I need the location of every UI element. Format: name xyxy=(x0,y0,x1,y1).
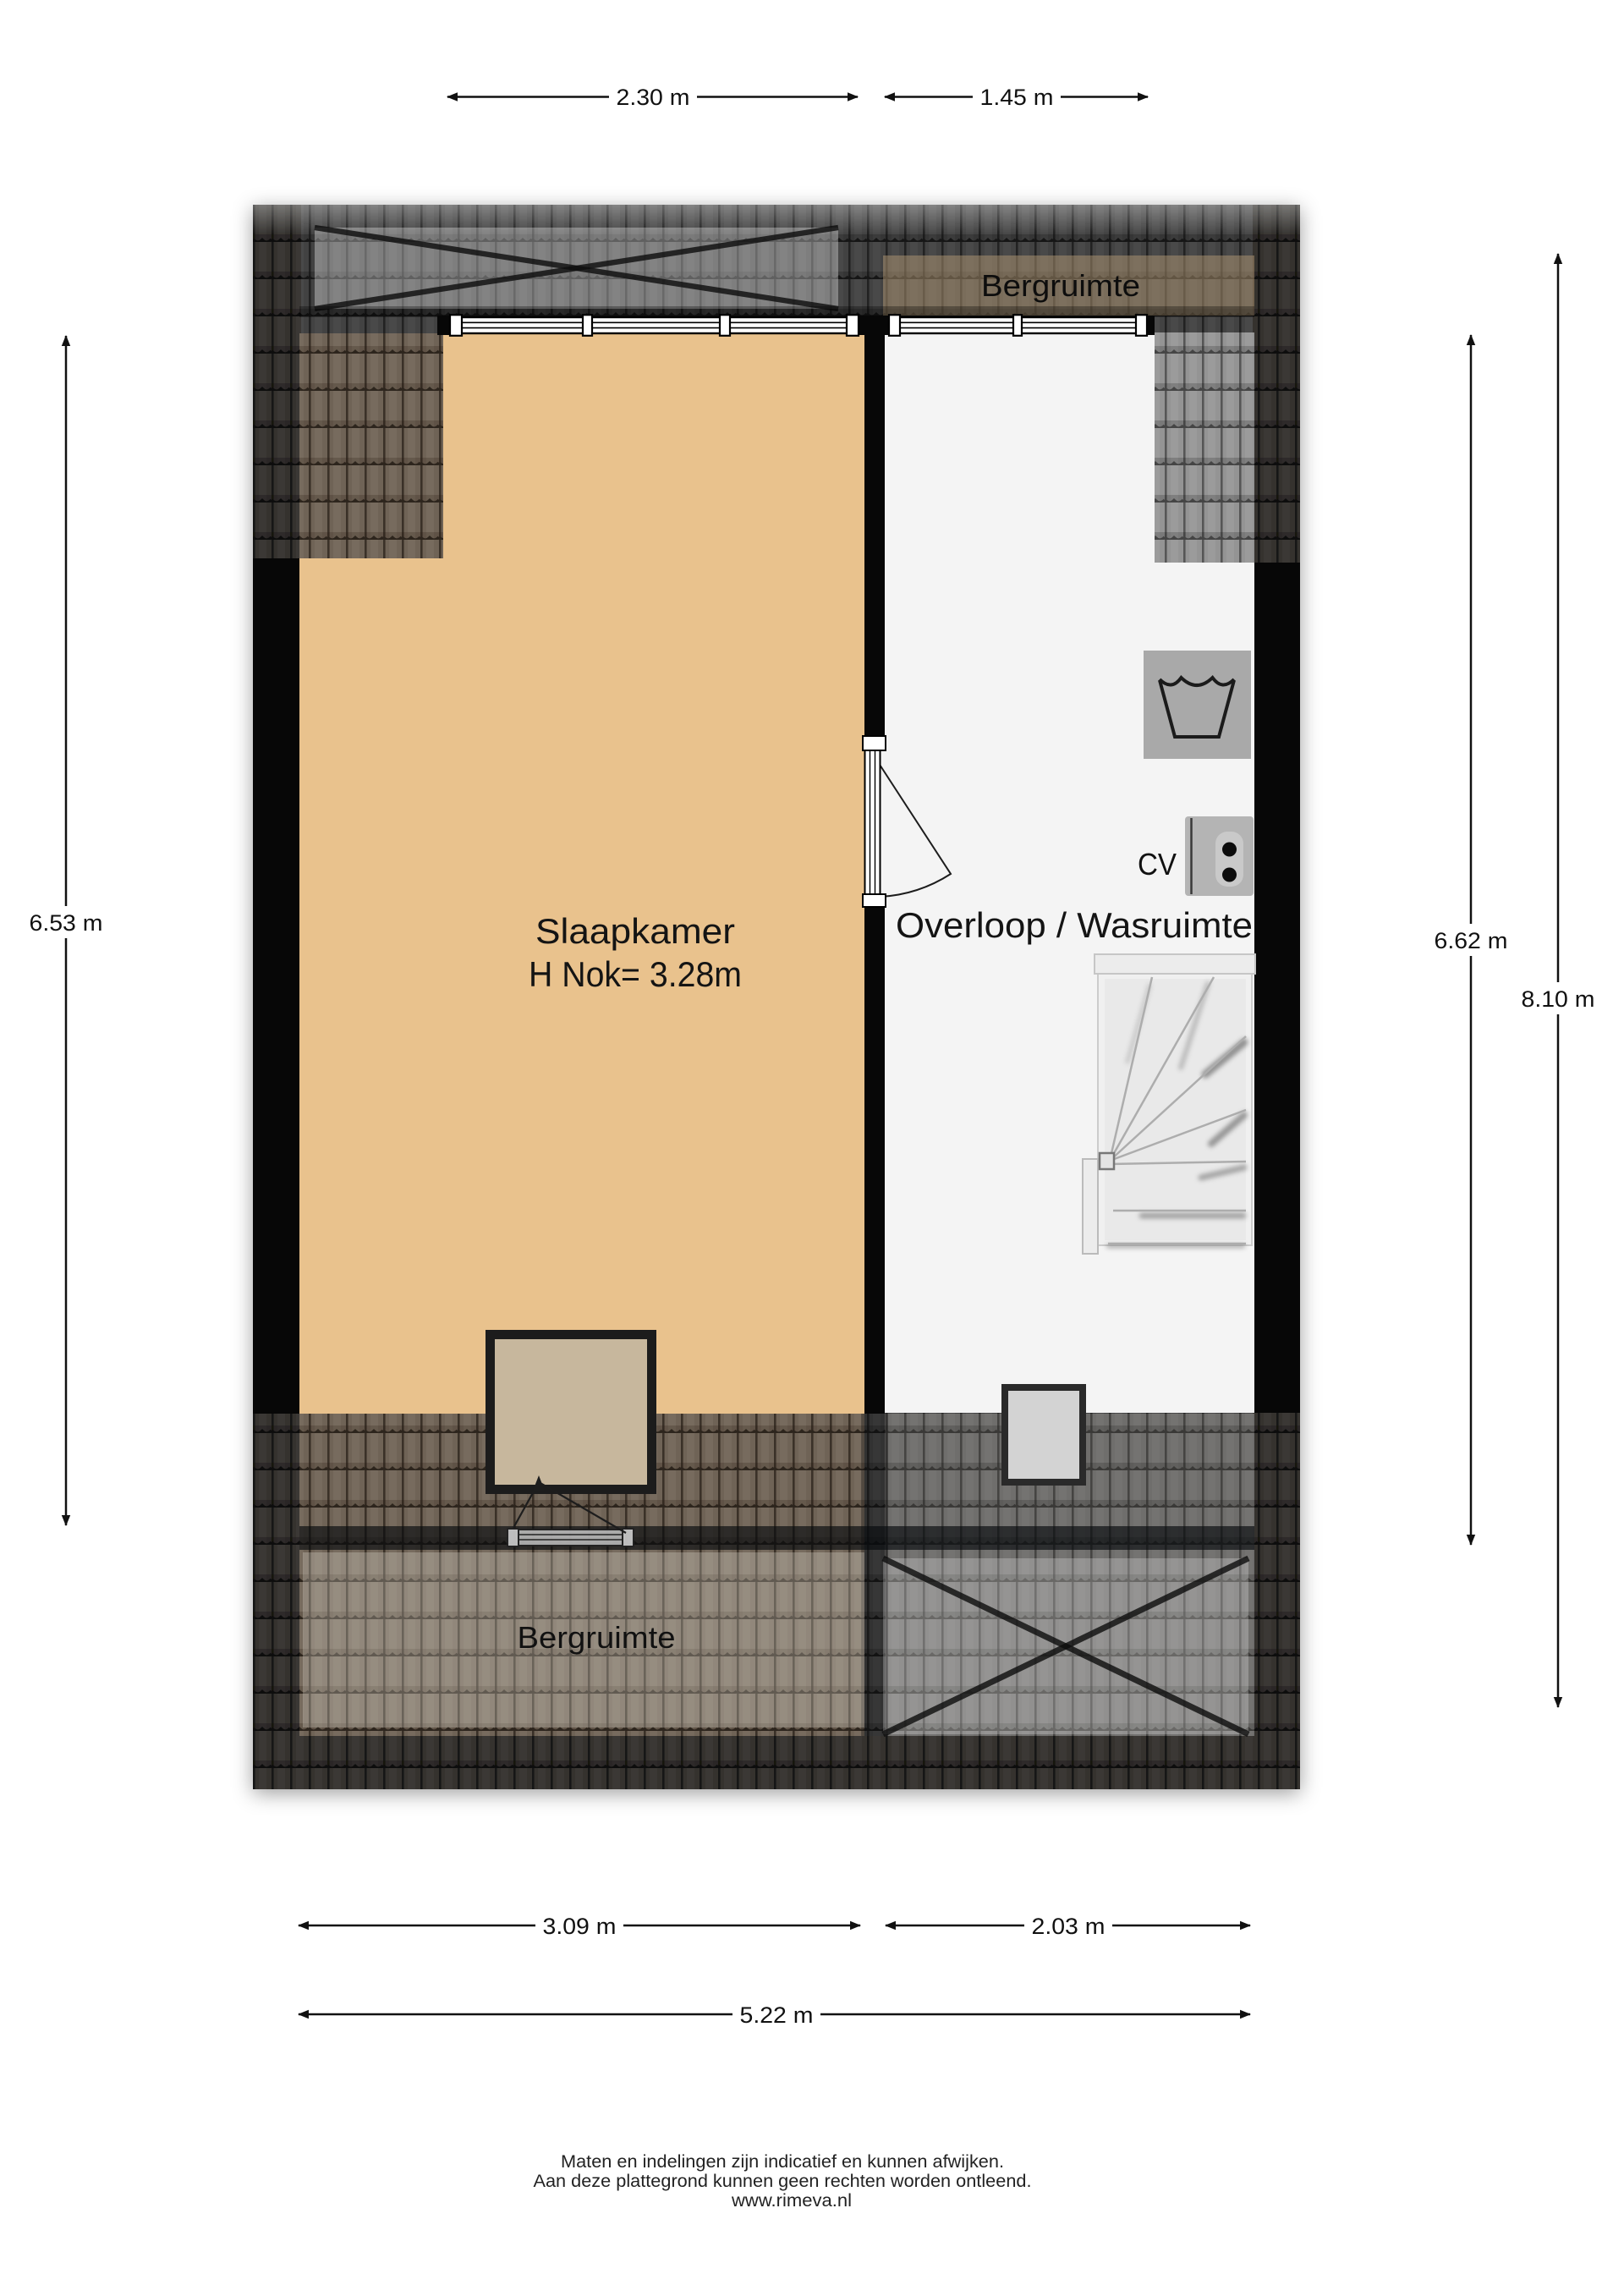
svg-text:6.62 m: 6.62 m xyxy=(1435,928,1508,953)
svg-text:6.53 m: 6.53 m xyxy=(30,910,103,936)
svg-text:CV: CV xyxy=(1138,847,1177,882)
svg-text:2.30 m: 2.30 m xyxy=(617,85,690,110)
svg-text:Maten en indelingen zijn indic: Maten en indelingen zijn indicatief en k… xyxy=(561,2151,1004,2172)
svg-text:5.22 m: 5.22 m xyxy=(740,2002,814,2028)
svg-text:8.10 m: 8.10 m xyxy=(1522,986,1595,1012)
svg-text:H Nok= 3.28m: H Nok= 3.28m xyxy=(529,954,742,994)
svg-text:Bergruimte: Bergruimte xyxy=(981,268,1140,303)
svg-text:1.45 m: 1.45 m xyxy=(980,85,1054,110)
svg-text:Slaapkamer: Slaapkamer xyxy=(535,911,735,951)
svg-text:Bergruimte: Bergruimte xyxy=(518,1620,676,1655)
svg-text:2.03 m: 2.03 m xyxy=(1032,1914,1106,1939)
svg-text:Overloop / Wasruimte: Overloop / Wasruimte xyxy=(896,905,1253,945)
svg-text:3.09 m: 3.09 m xyxy=(543,1914,617,1939)
svg-text:www.rimeva.nl: www.rimeva.nl xyxy=(731,2190,852,2211)
svg-text:Aan deze plattegrond kunnen ge: Aan deze plattegrond kunnen geen rechten… xyxy=(534,2171,1032,2191)
